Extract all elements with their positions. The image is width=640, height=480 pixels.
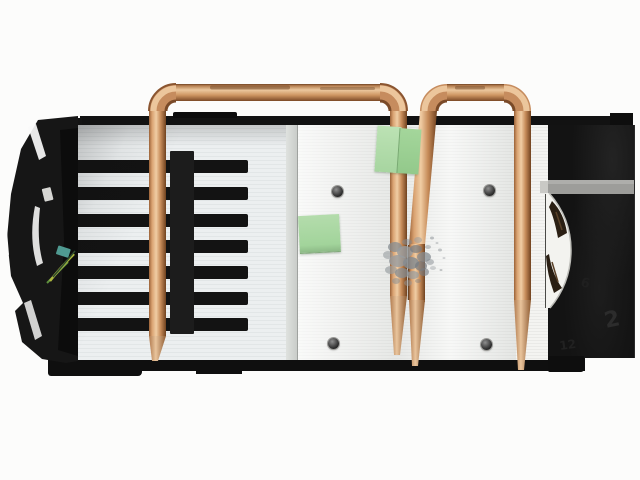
heatpipe-tarnish [210,86,290,90]
heatsink-screw [332,186,343,197]
shroud-embossed-digit-2: 6 [579,275,591,292]
heatpipe-tarnish [455,86,485,90]
fan-ring [545,193,571,308]
heatpipe-small-loop [409,84,532,370]
heatpipe-large-loop [149,84,407,361]
heatsink-screw [484,185,495,196]
heatsink-screw [328,338,339,349]
heatpipe-flattened-tip [390,296,407,355]
product-photo-stage: 2 6 12 [0,0,640,480]
heatpipe-flattened-tip [409,300,425,366]
green-tape-tab-upper [374,126,420,175]
shroud-gray-stripe [540,180,634,194]
heatpipe-flattened-tip [514,300,531,370]
heatpipe-flattened-tip [149,336,166,361]
shroud-embossed-digit: 2 [602,306,622,334]
heatsink-screw [481,339,492,350]
green-tape-tab-middle [298,214,341,254]
shroud-embossed-digit-3: 12 [558,337,576,353]
tape-panel [396,128,421,174]
left-mounting-bracket [1,116,78,363]
heatpipe-tarnish [320,87,375,90]
